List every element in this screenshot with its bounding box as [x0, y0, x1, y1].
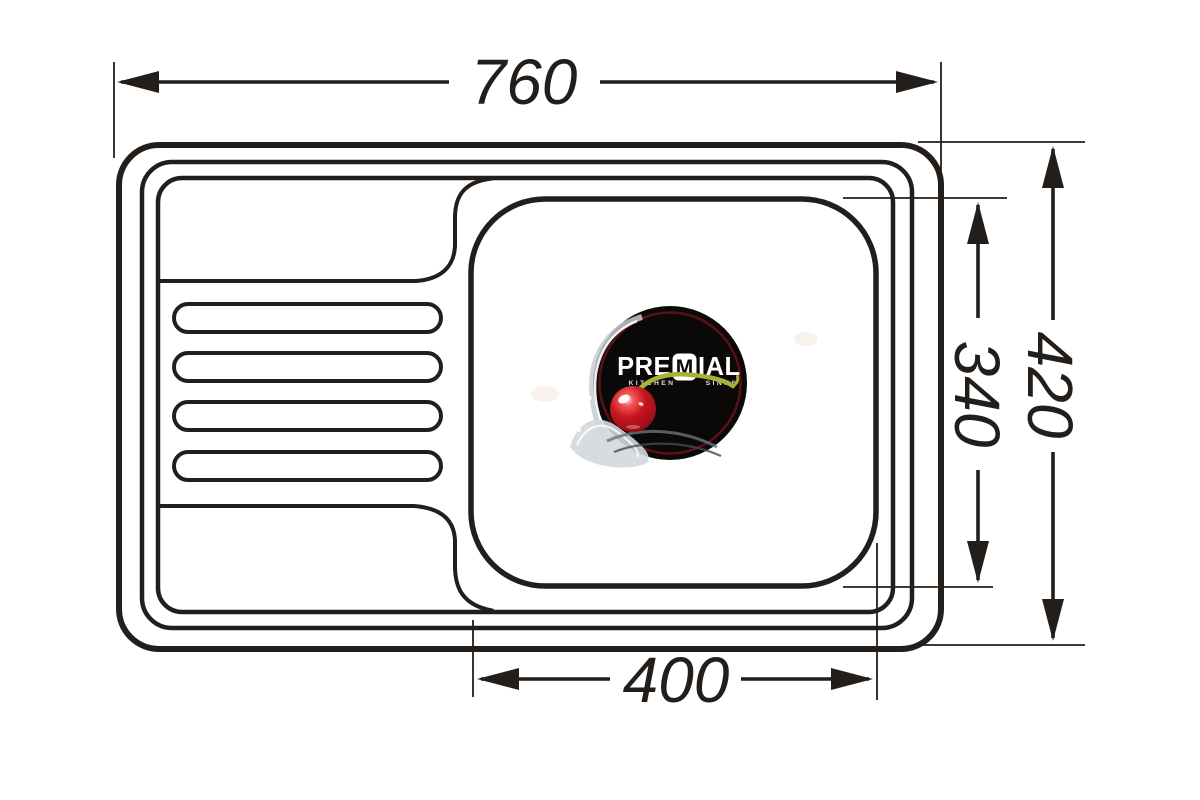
- drainboard-slot: [174, 402, 441, 430]
- sink-deck-edge: [158, 178, 893, 612]
- drainboard-slot: [174, 353, 441, 381]
- print-smudge: [531, 386, 559, 402]
- sink-contours: [119, 145, 941, 649]
- premial-logo: PRE M IAL KITCHEN SINKS: [570, 306, 747, 468]
- arrowhead-bowl-depth-down: [967, 541, 989, 583]
- arrowhead-bowl-depth-up: [967, 202, 989, 244]
- arrowhead-bowl-width-left: [477, 668, 519, 690]
- sink-technical-drawing: PRE M IAL KITCHEN SINKS: [0, 0, 1200, 800]
- sink-rim-edge: [142, 162, 912, 628]
- drainboard-upper-boundary: [160, 179, 492, 282]
- cherry: [610, 386, 656, 432]
- drainboard-lower-boundary: [160, 506, 492, 611]
- dimension-label-overall-depth: 420: [1014, 332, 1086, 439]
- arrowhead-bowl-width-right: [831, 668, 873, 690]
- drainboard-slot: [174, 452, 441, 480]
- arrowhead-width-left: [117, 71, 159, 93]
- dimension-label-bowl-depth: 340: [941, 341, 1013, 448]
- dimension-label-overall-width: 760: [471, 46, 578, 118]
- sink-outer-edge: [119, 145, 941, 649]
- arrowhead-depth-down: [1042, 599, 1064, 641]
- dimension-label-bowl-width: 400: [623, 644, 730, 716]
- arrowhead-depth-up: [1042, 146, 1064, 188]
- drainboard-slot: [174, 304, 441, 332]
- sink-technical-drawing-page: PRE M IAL KITCHEN SINKS: [0, 0, 1200, 800]
- print-smudge: [794, 332, 818, 346]
- arrowhead-width-right: [896, 71, 938, 93]
